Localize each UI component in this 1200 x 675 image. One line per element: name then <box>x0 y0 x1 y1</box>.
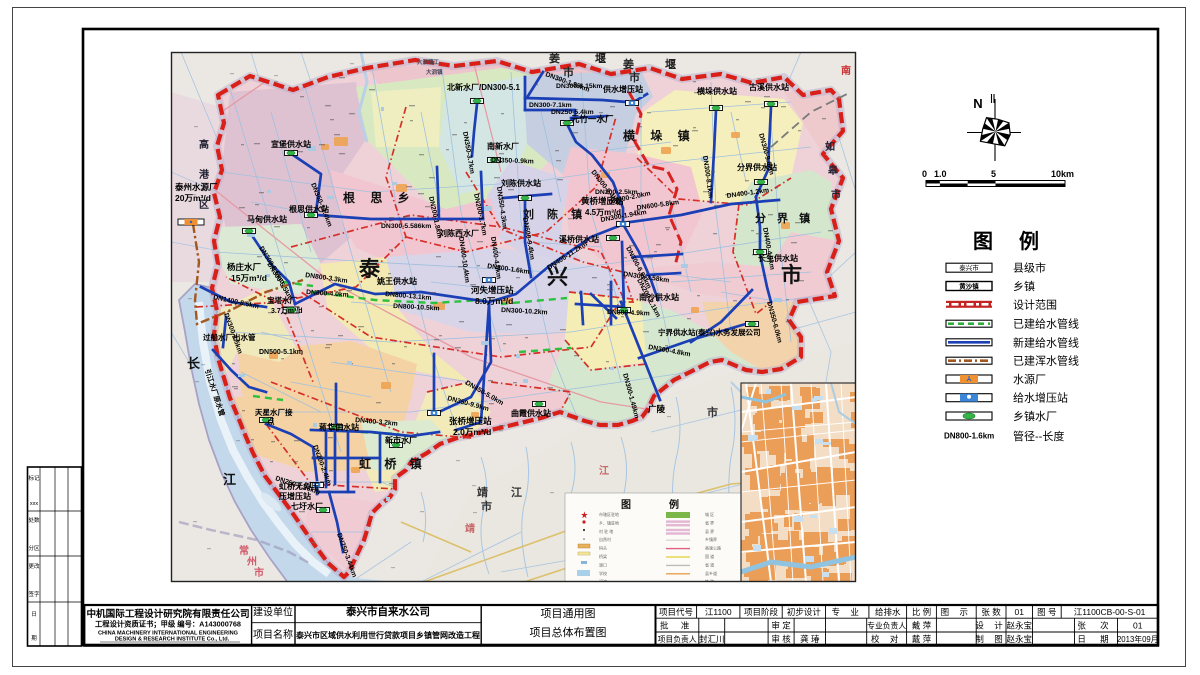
svg-text:图例: 图例 <box>621 498 717 511</box>
svg-text:给水增压站: 给水增压站 <box>1013 391 1068 405</box>
svg-text:已建浑水管线: 已建浑水管线 <box>1013 354 1079 368</box>
svg-text:溪桥供水站: 溪桥供水站 <box>559 234 599 244</box>
svg-text:给排水: 给排水 <box>875 607 901 617</box>
svg-text:龚 瑃: 龚 瑃 <box>800 634 820 644</box>
svg-text:国 道: 国 道 <box>705 553 714 559</box>
svg-text:省 界: 省 界 <box>705 519 714 525</box>
svg-text:供水增压站: 供水增压站 <box>602 84 643 94</box>
svg-text:设 计: 设 计 <box>975 620 1006 630</box>
svg-text:项目通用图: 项目通用图 <box>541 607 596 620</box>
svg-text:项目代号: 项目代号 <box>659 607 693 617</box>
svg-text:广陵: 广陵 <box>648 404 666 414</box>
svg-text:批 准: 批 准 <box>660 620 694 630</box>
svg-text:比 例: 比 例 <box>912 607 931 617</box>
svg-text:泰州水源厂: 泰州水源厂 <box>174 182 218 192</box>
svg-text:建设单位: 建设单位 <box>253 606 293 619</box>
svg-text:已建给水管线: 已建给水管线 <box>1013 317 1079 331</box>
svg-text:点: 点 <box>267 416 275 426</box>
svg-text:码头: 码头 <box>599 545 607 551</box>
svg-text:标记: 标记 <box>28 474 40 482</box>
svg-text:市: 市 <box>254 566 264 579</box>
svg-text:1.0: 1.0 <box>934 169 947 179</box>
svg-text:大泗镇: 大泗镇 <box>426 68 443 76</box>
svg-text:城 区: 城 区 <box>705 511 714 517</box>
svg-text:靖: 靖 <box>465 522 475 535</box>
svg-text:审 定: 审 定 <box>771 620 791 630</box>
svg-text:中机国际工程设计研究院有限责任公司: 中机国际工程设计研究院有限责任公司 <box>86 608 249 620</box>
svg-text:北新水厂/DN300-5.1: 北新水厂/DN300-5.1 <box>447 82 520 92</box>
svg-text:项目阶段: 项目阶段 <box>744 607 779 617</box>
svg-text:图 号: 图 号 <box>1037 607 1056 617</box>
svg-text:赵永宝: 赵永宝 <box>1006 620 1032 630</box>
svg-text:期: 期 <box>31 635 37 642</box>
svg-text:日: 日 <box>31 611 37 618</box>
svg-text:省 道: 省 道 <box>705 561 714 567</box>
svg-text:张桥增压站: 张桥增压站 <box>449 416 492 426</box>
svg-text:刘 陈 镇: 刘 陈 镇 <box>523 207 587 221</box>
svg-text:南新水厂: 南新水厂 <box>487 141 519 151</box>
svg-text:市辖区驻地: 市辖区驻地 <box>599 511 619 517</box>
svg-text:审 核: 审 核 <box>771 634 791 644</box>
svg-text:张 数: 张 数 <box>981 607 1001 617</box>
svg-text:签字: 签字 <box>28 590 40 598</box>
svg-text:10km: 10km <box>1051 169 1074 179</box>
svg-text:DN800-1.6km: DN800-1.6km <box>944 432 994 441</box>
svg-text:横垛供水站: 横垛供水站 <box>697 86 737 96</box>
svg-text:古溪供水站: 古溪供水站 <box>749 82 789 92</box>
svg-text:乡镇水厂: 乡镇水厂 <box>1013 409 1057 423</box>
svg-text:压增压站: 压增压站 <box>279 491 311 501</box>
svg-text:高速公路: 高速公路 <box>705 545 721 551</box>
svg-text:皋: 皋 <box>828 164 839 177</box>
svg-text:学校: 学校 <box>599 570 607 576</box>
svg-text:曲霞供水站: 曲霞供水站 <box>511 408 551 418</box>
svg-text:DN500-5.1km: DN500-5.1km <box>259 349 303 356</box>
svg-text:DN300-7.1km: DN300-7.1km <box>529 102 572 109</box>
svg-text:横 垛 镇: 横 垛 镇 <box>623 128 696 143</box>
svg-text:刘陈供水站: 刘陈供水站 <box>501 178 541 188</box>
svg-text:市: 市 <box>707 405 718 419</box>
svg-text:姚王供水站: 姚王供水站 <box>376 276 417 286</box>
svg-text:戴 萍: 戴 萍 <box>912 620 932 630</box>
svg-text:江: 江 <box>599 464 609 477</box>
svg-text:水源厂: 水源厂 <box>1013 372 1046 386</box>
svg-text:如: 如 <box>825 140 835 153</box>
svg-text:靖: 靖 <box>477 485 488 499</box>
svg-text:乡、镇驻地: 乡、镇驻地 <box>599 519 619 525</box>
svg-text:DN250-5.4km: DN250-5.4km <box>551 109 594 116</box>
svg-text:黄沙镇: 黄沙镇 <box>959 282 979 291</box>
svg-text:工程设计资质证书；甲级 编号：A143000768: 工程设计资质证书；甲级 编号：A143000768 <box>95 620 241 630</box>
svg-text:0: 0 <box>922 169 927 179</box>
svg-text:乡镇: 乡镇 <box>1013 279 1035 293</box>
svg-text:新市水厂: 新市水厂 <box>385 435 417 445</box>
svg-text:初步设计: 初步设计 <box>787 607 822 617</box>
svg-text:桥梁: 桥梁 <box>599 553 607 559</box>
svg-text:专 业: 专 业 <box>832 607 863 617</box>
svg-text:01: 01 <box>1133 620 1143 630</box>
svg-text:01: 01 <box>1015 607 1025 617</box>
svg-text:泰兴市: 泰兴市 <box>959 263 979 272</box>
svg-text:DN350-0.9km: DN350-0.9km <box>491 157 534 165</box>
svg-text:蒋华供水站: 蒋华供水站 <box>319 422 359 432</box>
svg-text:宁界供水站(泰兴)水务发展公司: 宁界供水站(泰兴)水务发展公司 <box>658 327 761 337</box>
svg-text:渡口: 渡口 <box>599 561 607 567</box>
svg-text:3.7万m³/d: 3.7万m³/d <box>271 307 303 315</box>
svg-text:杨庄水厂: 杨庄水厂 <box>227 262 262 272</box>
svg-text:天星水厂接: 天星水厂接 <box>255 407 293 417</box>
svg-text:5: 5 <box>991 169 996 179</box>
svg-text:江: 江 <box>223 472 236 487</box>
svg-text:项目负责人: 项目负责人 <box>658 634 697 644</box>
svg-text:戴 萍: 戴 萍 <box>912 634 932 644</box>
svg-text:15万m³/d: 15万m³/d <box>231 273 267 283</box>
svg-text:长生供水站: 长生供水站 <box>758 253 798 263</box>
svg-text:自然村: 自然村 <box>599 536 611 542</box>
svg-text:分区: 分区 <box>28 544 40 552</box>
svg-text:赵永宝: 赵永宝 <box>1006 634 1032 644</box>
svg-text:泰: 泰 <box>358 258 381 281</box>
svg-text:县 界: 县 界 <box>705 528 714 534</box>
svg-text:港: 港 <box>199 168 210 181</box>
svg-text:泰兴市自来水公司: 泰兴市自来水公司 <box>345 605 430 618</box>
svg-text:图 示: 图 示 <box>941 607 972 617</box>
svg-text:大泗镇工: 大泗镇工 <box>417 58 440 66</box>
svg-text:N: N <box>973 96 982 111</box>
svg-text:高: 高 <box>199 138 209 151</box>
svg-text:处数: 处数 <box>28 516 40 524</box>
svg-text:xxx: xxx <box>30 501 39 507</box>
svg-text:图例: 图例 <box>973 229 1065 253</box>
svg-text:根 思 乡: 根 思 乡 <box>343 190 416 205</box>
svg-text:DN300-5.586km: DN300-5.586km <box>381 223 431 230</box>
svg-text:2.0万m³/d: 2.0万m³/d <box>453 427 491 437</box>
svg-text:DESIGN & RESEARCH INSTITUTE Co: DESIGN & RESEARCH INSTITUTE Co., Ltd. <box>115 637 230 643</box>
svg-text:2013年09月: 2013年09月 <box>1117 634 1159 644</box>
svg-text:南: 南 <box>841 64 851 77</box>
svg-text:项目总体布置图: 项目总体布置图 <box>530 625 607 639</box>
svg-text:村 驻 地: 村 驻 地 <box>599 528 613 534</box>
svg-text:常: 常 <box>239 544 249 557</box>
svg-text:七圩水厂: 七圩水厂 <box>291 501 323 511</box>
svg-text:马甸供水站: 马甸供水站 <box>247 214 287 224</box>
svg-text:市: 市 <box>781 263 802 287</box>
svg-text:分 界 镇: 分 界 镇 <box>755 211 814 225</box>
svg-text:州: 州 <box>246 556 257 568</box>
svg-text:区: 区 <box>199 199 209 211</box>
svg-text:市: 市 <box>629 70 640 84</box>
svg-text:姜 堰: 姜 堰 <box>623 57 690 71</box>
svg-text:市: 市 <box>481 499 492 513</box>
svg-text:张 次: 张 次 <box>1077 620 1114 630</box>
svg-text:江1100CB-00-S-01: 江1100CB-00-S-01 <box>1074 607 1146 617</box>
svg-text:县乡道: 县乡道 <box>705 570 717 576</box>
svg-text:泰兴市区域供水利用世行贷款项目乡镇管网改造工程: 泰兴市区域供水利用世行贷款项目乡镇管网改造工程 <box>295 630 480 640</box>
svg-text:宣堡供水站: 宣堡供水站 <box>271 139 311 149</box>
svg-text:项目名称: 项目名称 <box>253 628 293 641</box>
svg-text:8.0万m³/d: 8.0万m³/d <box>475 296 513 306</box>
svg-text:新建给水管线: 新建给水管线 <box>1013 335 1079 349</box>
svg-text:专业负责人: 专业负责人 <box>867 620 906 630</box>
svg-text:乡镇界: 乡镇界 <box>705 536 717 542</box>
svg-text:市: 市 <box>831 188 841 201</box>
svg-text:DN300-4.9km: DN300-4.9km <box>607 309 650 317</box>
svg-text:制 图: 制 图 <box>975 634 1006 644</box>
svg-text:长: 长 <box>187 356 201 371</box>
svg-text:县级市: 县级市 <box>1013 261 1046 275</box>
svg-text:河失增压站: 河失增压站 <box>471 285 514 295</box>
svg-text:校 对: 校 对 <box>871 634 902 644</box>
svg-text:DN200-2.5km: DN200-2.5km <box>595 189 638 196</box>
svg-text:江: 江 <box>511 485 522 499</box>
svg-text:管径--长度: 管径--长度 <box>1013 429 1064 443</box>
svg-text:更改: 更改 <box>28 562 40 570</box>
svg-text:江1100: 江1100 <box>705 607 732 617</box>
svg-text:日 期: 日 期 <box>1077 634 1114 644</box>
svg-text:封汇川: 封汇川 <box>699 634 725 644</box>
svg-text:设计范围: 设计范围 <box>1013 297 1057 311</box>
svg-text:虹 桥 镇: 虹 桥 镇 <box>359 456 427 471</box>
